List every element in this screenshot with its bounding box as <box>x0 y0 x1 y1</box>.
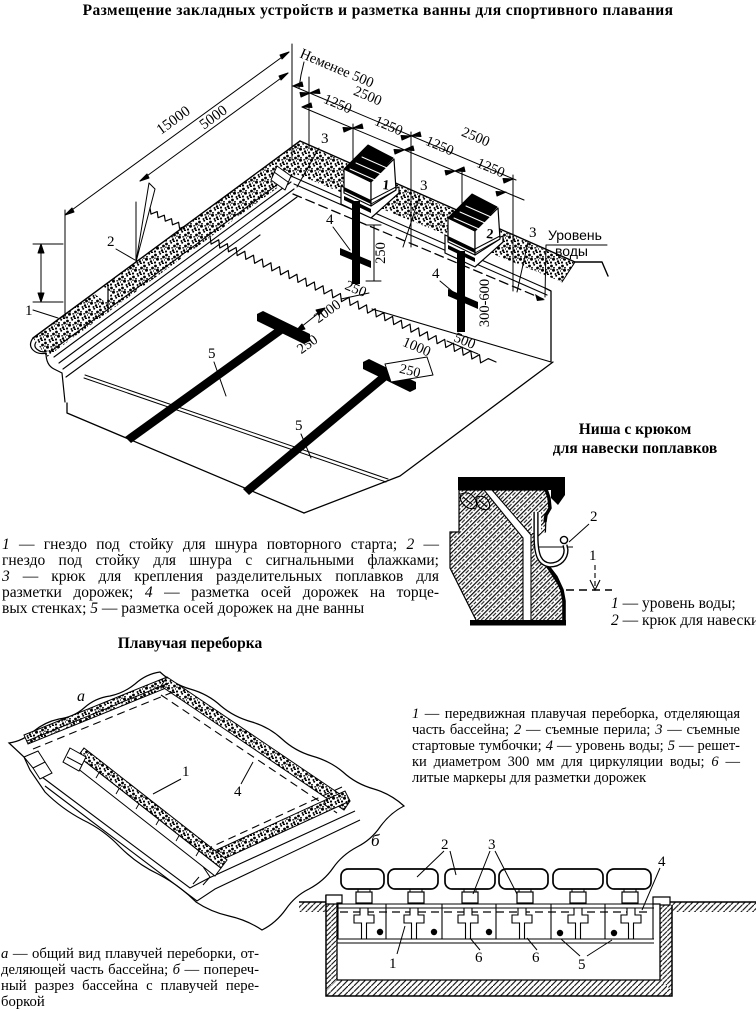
svg-text:2500: 2500 <box>351 83 384 109</box>
svg-text:4: 4 <box>658 854 666 870</box>
svg-text:3: 3 <box>488 837 496 853</box>
svg-text:1250: 1250 <box>372 113 405 139</box>
svg-text:4: 4 <box>234 784 242 800</box>
svg-text:2000: 2000 <box>311 297 344 327</box>
svg-text:1250: 1250 <box>474 155 507 181</box>
svg-text:250: 250 <box>373 242 389 264</box>
svg-text:2: 2 <box>441 837 449 853</box>
svg-text:6: 6 <box>475 950 483 966</box>
svg-text:2500: 2500 <box>459 124 492 150</box>
svg-text:1250: 1250 <box>423 133 456 159</box>
svg-text:4: 4 <box>326 212 334 228</box>
svg-text:5: 5 <box>578 957 586 973</box>
svg-text:500: 500 <box>451 330 477 353</box>
svg-text:1250: 1250 <box>321 91 354 117</box>
svg-text:5: 5 <box>295 418 303 434</box>
svg-text:2: 2 <box>590 509 598 525</box>
svg-text:1: 1 <box>25 303 33 319</box>
svg-text:6: 6 <box>532 950 540 966</box>
svg-text:300-600: 300-600 <box>477 279 493 327</box>
svg-text:а: а <box>77 688 85 705</box>
svg-text:3: 3 <box>420 178 428 194</box>
svg-text:5000: 5000 <box>197 102 231 133</box>
svg-text:1: 1 <box>182 764 190 780</box>
svg-text:б: б <box>371 831 380 850</box>
svg-text:4: 4 <box>432 266 440 282</box>
svg-text:5: 5 <box>208 346 216 362</box>
svg-text:15000: 15000 <box>154 103 194 138</box>
svg-text:воды: воды <box>555 243 588 259</box>
svg-text:3: 3 <box>529 225 537 241</box>
svg-text:3: 3 <box>321 131 329 147</box>
svg-text:1: 1 <box>389 956 397 972</box>
svg-text:Уровень: Уровень <box>548 227 602 243</box>
svg-text:2: 2 <box>107 234 115 250</box>
svg-text:1: 1 <box>589 548 597 564</box>
